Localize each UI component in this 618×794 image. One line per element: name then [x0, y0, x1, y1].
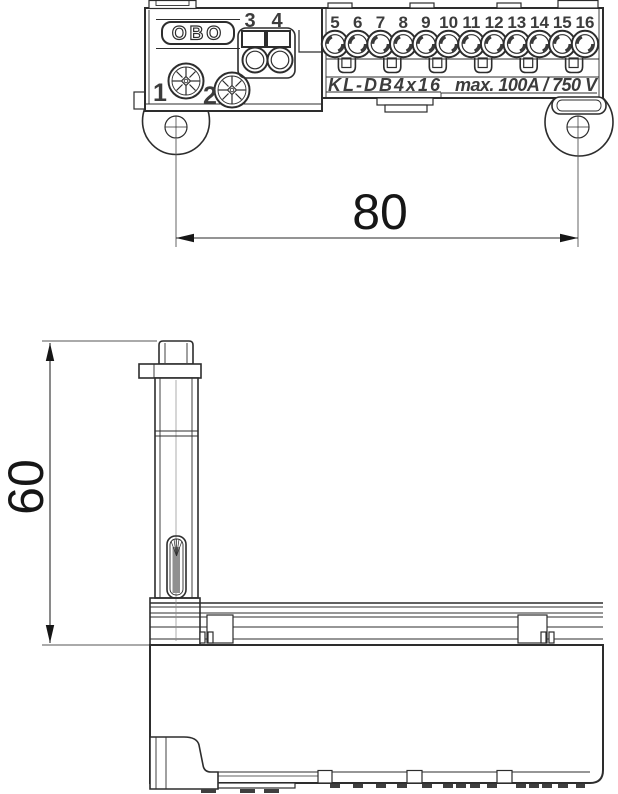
obo-logo-text: OBO	[172, 24, 224, 45]
top-tab-right	[558, 1, 598, 9]
top-tab-2	[410, 3, 434, 8]
terminal-16: 16	[572, 13, 598, 57]
svg-text:7: 7	[376, 13, 385, 32]
rail-clip-tab	[377, 98, 433, 105]
svg-text:14: 14	[530, 13, 549, 32]
top-tab-1	[328, 3, 352, 8]
terminal-15: 15	[549, 13, 575, 57]
drawing-page: OBO 1 2 3 4 5 6 7 8 9 10 11 12	[0, 0, 618, 794]
base-platform	[212, 783, 295, 788]
top-view: OBO 1 2 3 4 5 6 7 8 9 10 11 12	[134, 1, 613, 157]
svg-text:15: 15	[553, 13, 572, 32]
side-view: 60	[0, 341, 618, 793]
svg-text:5: 5	[330, 13, 339, 32]
rating-label: max. 100A / 750 V	[455, 75, 599, 95]
technical-drawing: OBO 1 2 3 4 5 6 7 8 9 10 11 12	[0, 0, 618, 794]
model-label: KL-DB4x16	[328, 75, 441, 95]
svg-text:9: 9	[421, 13, 430, 32]
terminal-13: 13	[504, 13, 530, 57]
svg-text:11: 11	[462, 13, 480, 32]
screw-label-2: 2	[203, 82, 217, 110]
top-tab-3	[497, 3, 521, 8]
terminal-label-4: 4	[271, 10, 283, 32]
screw-label-1: 1	[153, 79, 167, 107]
svg-text:6: 6	[353, 13, 362, 32]
terminal-12: 12	[481, 13, 507, 57]
width-value: 80	[352, 184, 408, 240]
arrow-left-icon	[176, 234, 194, 243]
svg-text:13: 13	[507, 13, 526, 32]
svg-text:8: 8	[398, 13, 407, 32]
left-fixing-hole	[165, 116, 188, 139]
terminal-label-3: 3	[244, 10, 255, 32]
arrow-up-icon	[46, 343, 54, 361]
left-post	[139, 341, 201, 645]
right-fixing-hole	[567, 116, 590, 139]
lower-housing	[150, 645, 603, 793]
height-dimension: 60	[0, 341, 157, 645]
width-dimension: 80	[176, 139, 578, 247]
arrow-right-icon	[560, 234, 578, 243]
terminal-14: 14	[526, 13, 552, 57]
svg-text:16: 16	[576, 13, 595, 32]
height-value: 60	[0, 459, 54, 515]
svg-text:12: 12	[485, 13, 504, 32]
screw-terminal-1	[169, 64, 204, 99]
terminal-10: 10	[435, 13, 461, 57]
arrow-down-icon	[46, 625, 54, 643]
svg-text:10: 10	[439, 13, 458, 32]
